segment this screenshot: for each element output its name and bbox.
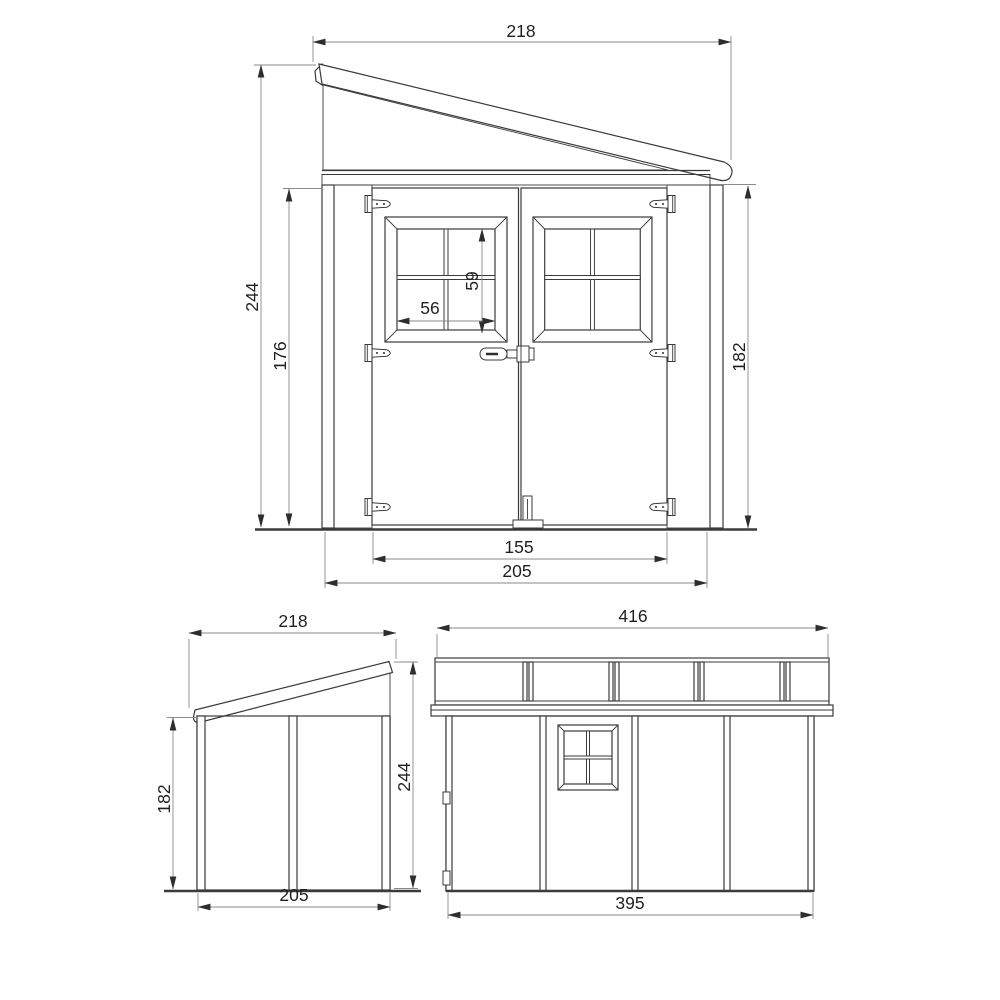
long-wall-window	[558, 725, 618, 790]
edge-hinge-mark	[443, 792, 450, 804]
dimension-label: 244	[242, 282, 262, 311]
side-left-batten	[197, 716, 205, 890]
dim-roof-length: 416	[437, 606, 828, 657]
front-header-band	[322, 175, 710, 186]
dimension-label: 155	[504, 537, 533, 557]
front-roof-panel	[315, 64, 732, 181]
long-wall-batten	[540, 716, 546, 891]
front-double-doors	[365, 188, 675, 528]
dim-wall-length: 395	[448, 893, 813, 919]
dimension-label: 59	[462, 271, 482, 290]
left-door-top-hinge	[365, 196, 390, 213]
roof-band-fascia	[431, 705, 833, 716]
front-roof-slab	[319, 64, 732, 181]
door-slide-latch	[480, 346, 534, 362]
edge-hinge-mark	[443, 871, 450, 885]
left-door-middle-hinge	[365, 345, 390, 362]
left-door-bottom-hinge	[365, 499, 390, 516]
dimension-label: 182	[154, 784, 174, 813]
dim-side-wall-height: 182	[154, 718, 197, 890]
dim-front-total-height: 244	[242, 65, 316, 527]
long-wall-batten	[724, 716, 730, 891]
dimension-label: 176	[270, 341, 290, 370]
roof-band-frame	[435, 658, 829, 705]
dimension-label: 182	[729, 342, 749, 371]
right-door-middle-hinge	[650, 345, 675, 362]
side-wall	[197, 716, 390, 890]
long-side-elevation-view: 416 395	[431, 606, 833, 919]
left-door-window	[385, 217, 507, 342]
side-right-batten	[382, 716, 390, 890]
front-gable-boards	[323, 85, 668, 170]
long-wall-right-batten	[808, 716, 814, 891]
front-right-corner-trim	[710, 185, 723, 528]
right-door-bottom-hinge	[650, 499, 675, 516]
dim-door-opening-width: 155	[373, 532, 667, 564]
right-door-top-hinge	[650, 196, 675, 213]
dimension-label: 244	[394, 762, 414, 791]
long-wall	[443, 716, 814, 891]
front-elevation-view: 218 244 176 182 59	[242, 21, 757, 588]
dimension-label: 395	[615, 893, 644, 913]
dimension-label: 416	[618, 606, 647, 626]
side-roof-slab	[194, 662, 393, 723]
front-gable	[322, 85, 710, 185]
right-door-window	[533, 217, 652, 342]
dimension-label: 205	[502, 561, 531, 581]
dimension-label: 56	[420, 298, 439, 318]
shed-dimension-drawing: 218 244 176 182 59	[0, 0, 1000, 1000]
long-wall-batten	[632, 716, 638, 891]
long-wall-siding	[446, 716, 814, 891]
side-elevation-view: 218 182 244 205	[154, 611, 421, 911]
dimension-label: 218	[278, 611, 307, 631]
dimension-label: 218	[506, 21, 535, 41]
side-middle-batten	[289, 716, 297, 890]
dimension-label: 205	[279, 885, 308, 905]
technical-drawing: 218 244 176 182 59	[0, 0, 1000, 1000]
dim-front-door-height: 176	[270, 189, 322, 527]
side-dimensions: 218 182 244 205	[154, 611, 418, 911]
front-left-corner-trim	[322, 185, 334, 528]
dim-side-total-height: 244	[394, 662, 418, 889]
door-drop-bolt	[513, 496, 543, 528]
dim-side-wall-depth: 205	[198, 885, 390, 911]
long-roof-band	[431, 658, 833, 716]
